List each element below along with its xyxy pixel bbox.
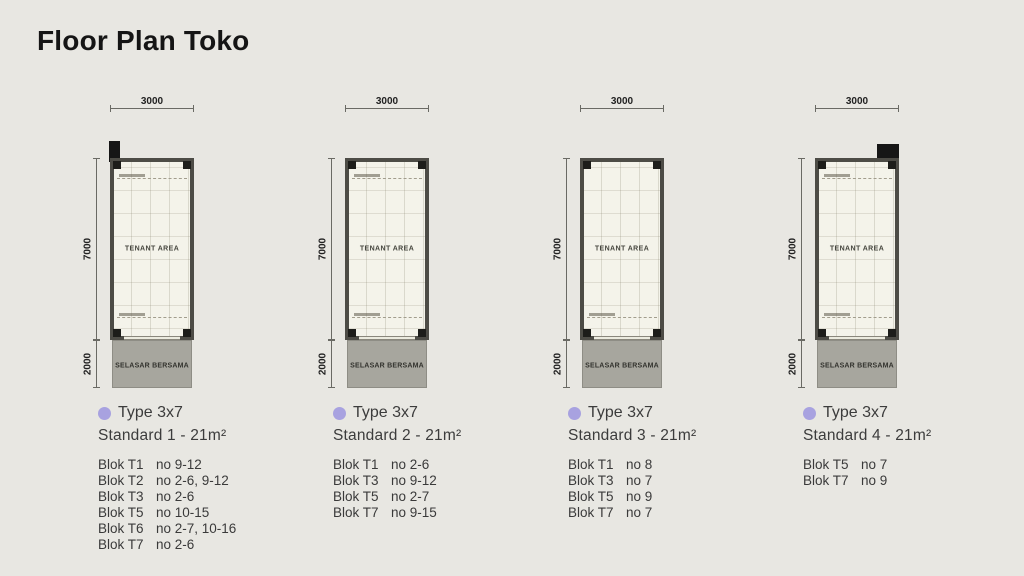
dimension-width-label: 3000 xyxy=(110,96,194,107)
slide: Floor Plan Toko 3000 7000 2000 xyxy=(0,0,1024,553)
blok-table: Blok T1 no 2-6 Blok T3 no 9-12 Blok T5 n… xyxy=(333,457,490,521)
wall-corner-column xyxy=(183,329,191,337)
dimension-height: 7000 xyxy=(96,158,106,340)
bullet-icon xyxy=(98,407,111,420)
dimension-width: 3000 xyxy=(345,96,429,110)
blok-name: Blok T7 xyxy=(98,537,156,553)
type-row: Type 3x7 xyxy=(803,404,960,422)
dimension-width: 3000 xyxy=(110,96,194,110)
blok-name: Blok T5 xyxy=(568,489,626,505)
blok-numbers: no 9-15 xyxy=(391,505,437,521)
blok-row: Blok T7 no 9 xyxy=(803,473,960,489)
standard-label: Standard 2 - 21m² xyxy=(333,427,490,445)
selasar-label: SELASAR BERSAMA xyxy=(113,363,191,370)
blok-row: Blok T5 no 10-15 xyxy=(98,505,255,521)
blok-name: Blok T5 xyxy=(803,457,861,473)
dimension-width: 3000 xyxy=(580,96,664,110)
plan-panel: 3000 7000 2000 TENANT AREA xyxy=(20,96,255,553)
wall-corner-column xyxy=(418,329,426,337)
dimension-width-line xyxy=(345,108,429,109)
floor-plan: 3000 7000 2000 TENANT AREA xyxy=(562,96,694,396)
blok-numbers: no 2-6 xyxy=(156,537,194,553)
floor-plan: 3000 7000 2000 TENANT AREA xyxy=(92,96,224,396)
blok-row: Blok T6 no 2-7, 10-16 xyxy=(98,521,255,537)
type-label: Type 3x7 xyxy=(353,404,418,422)
dimension-selasar-line xyxy=(801,340,802,388)
blok-name: Blok T1 xyxy=(333,457,391,473)
blok-table: Blok T5 no 7 Blok T7 no 9 xyxy=(803,457,960,489)
blok-numbers: no 9 xyxy=(861,473,887,489)
bullet-icon xyxy=(333,407,346,420)
blok-table: Blok T1 no 8 Blok T3 no 7 Blok T5 no 9 B… xyxy=(568,457,725,521)
blok-name: Blok T6 xyxy=(98,521,156,537)
blok-numbers: no 7 xyxy=(626,505,652,521)
blok-name: Blok T3 xyxy=(98,489,156,505)
dimension-height-label: 7000 xyxy=(318,238,329,260)
type-row: Type 3x7 xyxy=(98,404,255,422)
standard-label: Standard 1 - 21m² xyxy=(98,427,255,445)
dimension-width-line xyxy=(580,108,664,109)
dimension-height: 7000 xyxy=(331,158,341,340)
ceiling-note-line-top xyxy=(117,178,187,179)
dimension-width-line xyxy=(110,108,194,109)
dimension-width-line xyxy=(815,108,899,109)
dimension-selasar-label: 2000 xyxy=(788,353,799,375)
panel-info: Type 3x7 Standard 1 - 21m² Blok T1 no 9-… xyxy=(98,404,255,553)
blok-row: Blok T2 no 2-6, 9-12 xyxy=(98,473,255,489)
blok-numbers: no 8 xyxy=(626,457,652,473)
blok-name: Blok T5 xyxy=(98,505,156,521)
dimension-height-line xyxy=(331,158,332,340)
dimension-height-label: 7000 xyxy=(553,238,564,260)
wall-corner-column xyxy=(113,329,121,337)
blok-row: Blok T3 no 2-6 xyxy=(98,489,255,505)
ceiling-note-line-bottom xyxy=(587,317,657,318)
dimension-selasar: 2000 xyxy=(566,340,576,388)
wall-corner-column xyxy=(183,161,191,169)
dimension-height-line xyxy=(96,158,97,340)
tenant-area-label: TENANT AREA xyxy=(584,246,660,253)
dimension-height: 7000 xyxy=(566,158,576,340)
dimension-height-label: 7000 xyxy=(788,238,799,260)
selasar-label: SELASAR BERSAMA xyxy=(818,363,896,370)
wall-corner-column xyxy=(583,329,591,337)
plan-panel: 3000 7000 2000 TENANT AREA xyxy=(255,96,490,553)
selasar-label: SELASAR BERSAMA xyxy=(583,363,661,370)
blok-name: Blok T5 xyxy=(333,489,391,505)
selasar-label: SELASAR BERSAMA xyxy=(348,363,426,370)
blok-row: Blok T3 no 9-12 xyxy=(333,473,490,489)
tenant-area-label: TENANT AREA xyxy=(114,246,190,253)
wall-corner-column xyxy=(653,329,661,337)
blok-name: Blok T7 xyxy=(333,505,391,521)
selasar-area: SELASAR BERSAMA xyxy=(817,340,897,388)
dimension-selasar-line xyxy=(96,340,97,388)
blok-row: Blok T5 no 7 xyxy=(803,457,960,473)
blok-numbers: no 9-12 xyxy=(391,473,437,489)
wall-corner-column xyxy=(113,161,121,169)
blok-row: Blok T7 no 9-15 xyxy=(333,505,490,521)
blok-table: Blok T1 no 9-12 Blok T2 no 2-6, 9-12 Blo… xyxy=(98,457,255,553)
wall-corner-column xyxy=(653,161,661,169)
ceiling-note-line-bottom xyxy=(117,317,187,318)
blok-row: Blok T1 no 2-6 xyxy=(333,457,490,473)
tenant-area: TENANT AREA xyxy=(345,158,429,340)
selasar-area: SELASAR BERSAMA xyxy=(582,340,662,388)
ceiling-note-line-top xyxy=(822,178,892,179)
wall-corner-column xyxy=(418,161,426,169)
plan-panel: 3000 7000 2000 TENANT AREA xyxy=(725,96,960,553)
ceiling-note-line-bottom xyxy=(352,317,422,318)
blok-name: Blok T3 xyxy=(333,473,391,489)
blok-numbers: no 7 xyxy=(626,473,652,489)
floor-plan: 3000 7000 2000 TENANT AREA xyxy=(327,96,459,396)
selasar-area: SELASAR BERSAMA xyxy=(112,340,192,388)
blok-numbers: no 9 xyxy=(626,489,652,505)
dimension-height-line xyxy=(801,158,802,340)
tenant-area-label: TENANT AREA xyxy=(349,246,425,253)
blok-numbers: no 9-12 xyxy=(156,457,202,473)
bullet-icon xyxy=(568,407,581,420)
panel-info: Type 3x7 Standard 3 - 21m² Blok T1 no 8 … xyxy=(568,404,725,521)
blok-name: Blok T1 xyxy=(98,457,156,473)
ceiling-note-line-bottom xyxy=(822,317,892,318)
bullet-icon xyxy=(803,407,816,420)
panel-info: Type 3x7 Standard 2 - 21m² Blok T1 no 2-… xyxy=(333,404,490,521)
standard-label: Standard 3 - 21m² xyxy=(568,427,725,445)
dimension-height: 7000 xyxy=(801,158,811,340)
dimension-height-line xyxy=(566,158,567,340)
panels-board: 3000 7000 2000 TENANT AREA xyxy=(0,96,1024,553)
blok-name: Blok T7 xyxy=(568,505,626,521)
blok-row: Blok T7 no 2-6 xyxy=(98,537,255,553)
blok-numbers: no 10-15 xyxy=(156,505,209,521)
wall-corner-column xyxy=(888,329,896,337)
dimension-selasar-label: 2000 xyxy=(553,353,564,375)
dimension-selasar: 2000 xyxy=(801,340,811,388)
blok-numbers: no 7 xyxy=(861,457,887,473)
blok-row: Blok T7 no 7 xyxy=(568,505,725,521)
blok-numbers: no 2-7 xyxy=(391,489,429,505)
tenant-area: TENANT AREA xyxy=(815,158,899,340)
tenant-area-label: TENANT AREA xyxy=(819,246,895,253)
wall-corner-column xyxy=(348,329,356,337)
wall-corner-column xyxy=(583,161,591,169)
type-label: Type 3x7 xyxy=(118,404,183,422)
dimension-selasar-line xyxy=(566,340,567,388)
blok-row: Blok T1 no 9-12 xyxy=(98,457,255,473)
blok-numbers: no 2-7, 10-16 xyxy=(156,521,236,537)
type-row: Type 3x7 xyxy=(333,404,490,422)
dimension-selasar: 2000 xyxy=(331,340,341,388)
plan-panel: 3000 7000 2000 TENANT AREA xyxy=(490,96,725,553)
blok-name: Blok T7 xyxy=(803,473,861,489)
blok-row: Blok T3 no 7 xyxy=(568,473,725,489)
tenant-area: TENANT AREA xyxy=(110,158,194,340)
dimension-height-label: 7000 xyxy=(83,238,94,260)
ceiling-note-line-top xyxy=(352,178,422,179)
dimension-width: 3000 xyxy=(815,96,899,110)
dimension-selasar: 2000 xyxy=(96,340,106,388)
blok-numbers: no 2-6 xyxy=(156,489,194,505)
dimension-selasar-label: 2000 xyxy=(83,353,94,375)
blok-name: Blok T2 xyxy=(98,473,156,489)
dimension-width-label: 3000 xyxy=(815,96,899,107)
floor-plan: 3000 7000 2000 TENANT AREA xyxy=(797,96,929,396)
blok-numbers: no 2-6 xyxy=(391,457,429,473)
blok-row: Blok T5 no 2-7 xyxy=(333,489,490,505)
standard-label: Standard 4 - 21m² xyxy=(803,427,960,445)
wall-corner-column xyxy=(818,161,826,169)
dimension-width-label: 3000 xyxy=(580,96,664,107)
selasar-area: SELASAR BERSAMA xyxy=(347,340,427,388)
panel-info: Type 3x7 Standard 4 - 21m² Blok T5 no 7 … xyxy=(803,404,960,489)
tenant-area: TENANT AREA xyxy=(580,158,664,340)
wall-corner-column xyxy=(818,329,826,337)
dimension-selasar-label: 2000 xyxy=(318,353,329,375)
blok-row: Blok T5 no 9 xyxy=(568,489,725,505)
type-label: Type 3x7 xyxy=(823,404,888,422)
blok-name: Blok T1 xyxy=(568,457,626,473)
blok-numbers: no 2-6, 9-12 xyxy=(156,473,229,489)
type-row: Type 3x7 xyxy=(568,404,725,422)
dimension-selasar-line xyxy=(331,340,332,388)
dimension-width-label: 3000 xyxy=(345,96,429,107)
page-title: Floor Plan Toko xyxy=(0,0,1024,58)
wall-corner-column xyxy=(888,161,896,169)
blok-name: Blok T3 xyxy=(568,473,626,489)
wall-corner-column xyxy=(348,161,356,169)
type-label: Type 3x7 xyxy=(588,404,653,422)
blok-row: Blok T1 no 8 xyxy=(568,457,725,473)
